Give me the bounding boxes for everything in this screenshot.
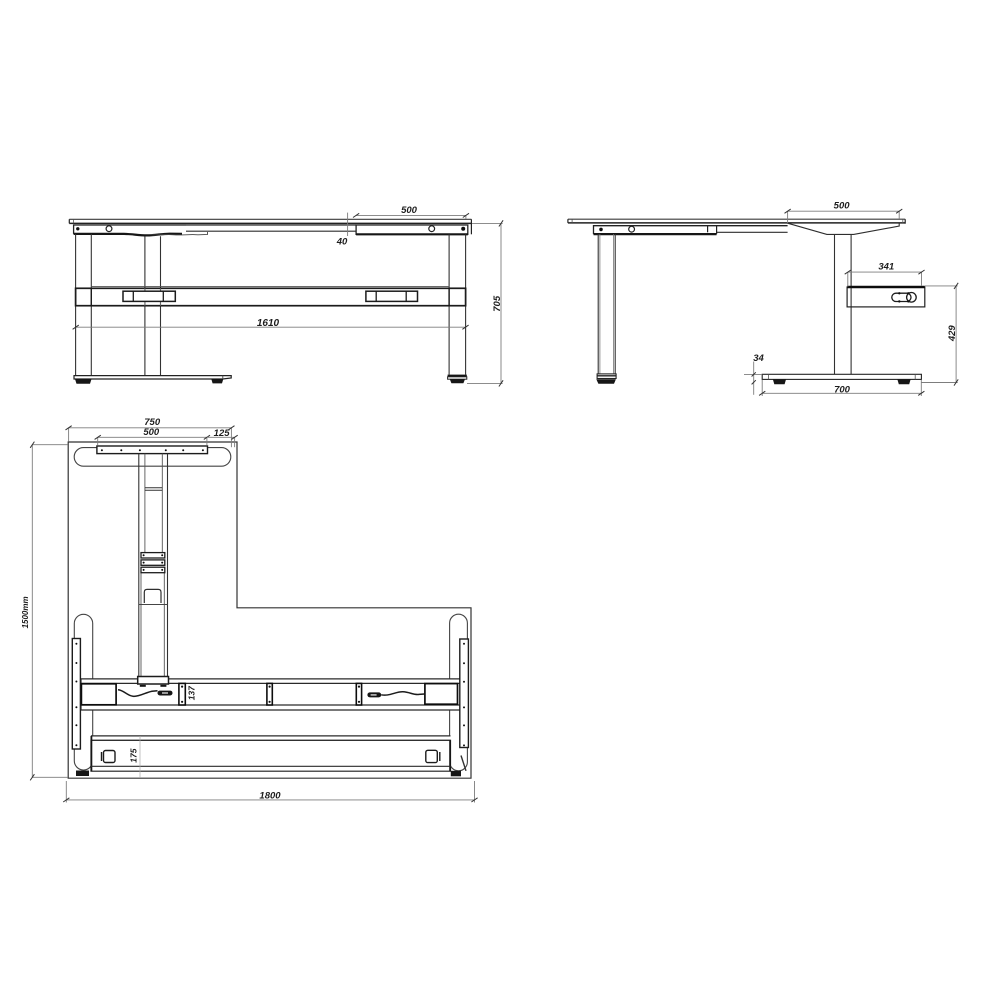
svg-text:429: 429 [947, 325, 958, 343]
svg-text:341: 341 [878, 261, 894, 272]
svg-text:137: 137 [187, 685, 197, 700]
svg-text:500: 500 [143, 427, 160, 438]
svg-text:1800: 1800 [259, 790, 281, 801]
svg-text:500: 500 [834, 201, 851, 212]
svg-text:500: 500 [401, 205, 418, 216]
svg-text:1500mm: 1500mm [21, 596, 30, 628]
svg-text:705: 705 [492, 295, 503, 312]
svg-text:125: 125 [214, 428, 231, 439]
svg-text:1610: 1610 [257, 318, 280, 329]
svg-text:40: 40 [336, 237, 348, 248]
svg-text:34: 34 [753, 353, 764, 364]
svg-text:175: 175 [129, 748, 139, 762]
svg-text:700: 700 [834, 385, 851, 396]
